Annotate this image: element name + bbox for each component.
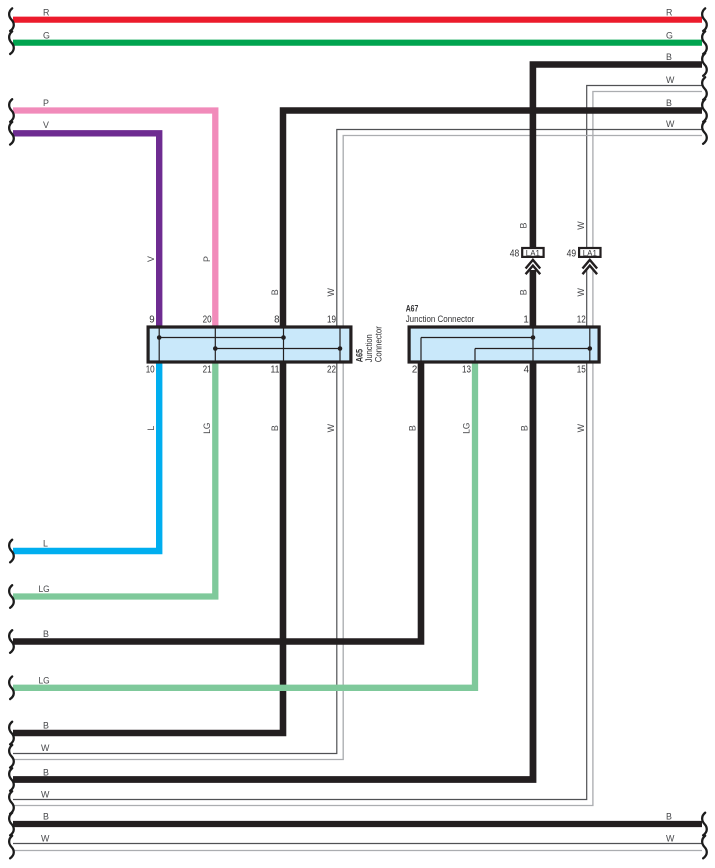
svg-text:A67: A67: [406, 303, 419, 313]
svg-text:LG: LG: [39, 675, 50, 685]
svg-text:B: B: [43, 767, 49, 777]
svg-text:B: B: [519, 425, 529, 431]
svg-text:12: 12: [577, 314, 586, 325]
svg-text:W: W: [41, 834, 50, 844]
svg-text:L: L: [146, 426, 156, 431]
svg-text:B: B: [43, 721, 49, 731]
svg-text:W: W: [576, 221, 586, 230]
svg-text:Junction Connector: Junction Connector: [406, 314, 475, 324]
svg-text:B: B: [270, 425, 280, 431]
svg-text:R: R: [43, 7, 49, 17]
svg-text:B: B: [666, 98, 672, 108]
svg-text:10: 10: [146, 364, 156, 375]
svg-text:LG: LG: [39, 584, 50, 594]
svg-text:W: W: [576, 287, 586, 296]
svg-text:LA1: LA1: [583, 248, 597, 258]
svg-text:B: B: [43, 629, 49, 639]
svg-text:LG: LG: [462, 423, 472, 434]
svg-text:B: B: [43, 812, 49, 822]
svg-text:L: L: [43, 539, 48, 549]
svg-text:W: W: [326, 423, 336, 432]
svg-text:48: 48: [510, 249, 520, 260]
svg-text:9: 9: [149, 314, 154, 325]
svg-text:21: 21: [203, 364, 212, 375]
svg-text:19: 19: [327, 314, 336, 325]
svg-text:1: 1: [523, 314, 528, 325]
svg-text:B: B: [666, 812, 672, 822]
svg-text:W: W: [666, 834, 675, 844]
svg-text:V: V: [43, 120, 49, 130]
svg-text:B: B: [666, 52, 672, 62]
svg-text:LA1: LA1: [526, 248, 540, 258]
svg-text:20: 20: [203, 314, 213, 325]
svg-text:R: R: [666, 7, 672, 17]
svg-text:P: P: [202, 256, 212, 262]
svg-text:49: 49: [567, 249, 577, 260]
svg-text:22: 22: [327, 364, 336, 375]
svg-text:W: W: [326, 287, 336, 296]
svg-text:B: B: [519, 289, 529, 295]
svg-text:W: W: [41, 743, 50, 753]
svg-text:G: G: [43, 30, 50, 40]
svg-text:Connector: Connector: [373, 326, 383, 362]
svg-text:11: 11: [271, 364, 280, 375]
svg-text:2: 2: [412, 364, 417, 375]
svg-text:B: B: [519, 222, 529, 228]
svg-text:W: W: [666, 119, 675, 129]
svg-text:LG: LG: [202, 423, 212, 434]
svg-text:15: 15: [577, 364, 586, 375]
svg-text:8: 8: [274, 314, 279, 325]
svg-text:P: P: [43, 98, 49, 108]
svg-text:A65: A65: [354, 349, 364, 362]
svg-text:W: W: [41, 789, 50, 799]
svg-text:V: V: [146, 256, 156, 262]
svg-text:4: 4: [524, 364, 530, 375]
svg-text:B: B: [270, 289, 280, 295]
svg-text:W: W: [576, 423, 586, 432]
svg-text:W: W: [666, 75, 675, 85]
svg-text:G: G: [666, 30, 673, 40]
svg-text:13: 13: [462, 364, 471, 375]
svg-text:B: B: [407, 425, 417, 431]
